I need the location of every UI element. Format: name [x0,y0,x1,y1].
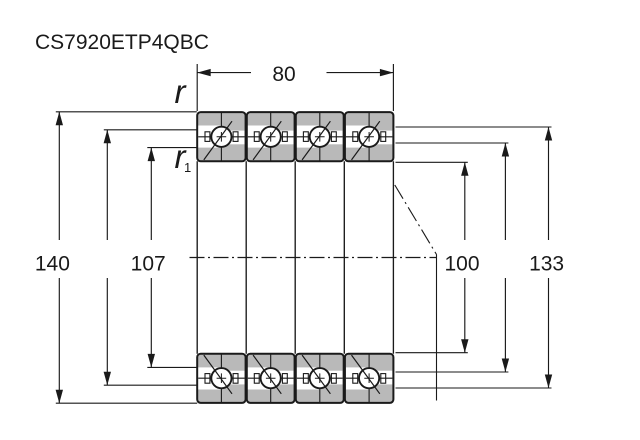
svg-text:107: 107 [131,253,166,276]
svg-text:CS7920ETP4QBC: CS7920ETP4QBC [35,31,209,54]
svg-text:100: 100 [444,253,479,276]
svg-text:140: 140 [35,253,70,276]
svg-text:80: 80 [272,63,295,86]
svg-text:133: 133 [529,253,564,276]
